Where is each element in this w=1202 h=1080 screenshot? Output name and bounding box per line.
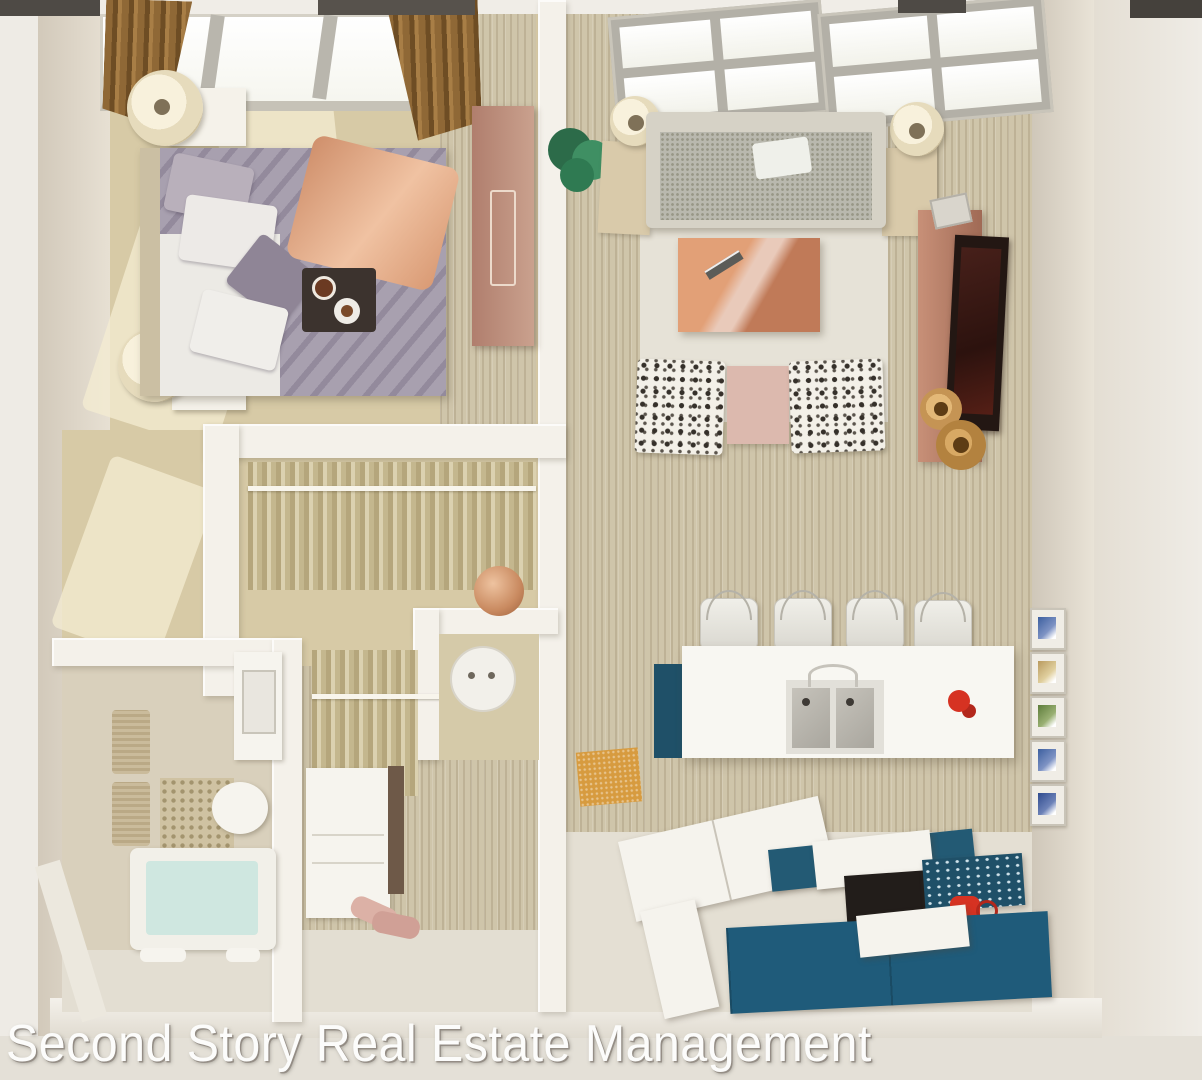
vase-opening <box>934 402 947 415</box>
vanity-basin <box>242 670 276 734</box>
double-bed <box>140 148 446 396</box>
lamp-finial <box>909 123 925 139</box>
drain <box>846 698 854 706</box>
bar-stool <box>846 598 904 652</box>
sofa <box>646 112 886 228</box>
plant <box>560 158 594 192</box>
tv-screen <box>953 247 1002 415</box>
curtain-rod-cap <box>318 0 475 15</box>
bar-stool <box>700 598 758 652</box>
media-box <box>929 192 972 229</box>
outside-right-edge <box>1094 0 1202 1080</box>
wall-art-tile <box>1030 740 1066 782</box>
window-pane <box>829 16 930 67</box>
headboard <box>140 148 160 396</box>
window-pane <box>720 11 814 60</box>
wall-cut-cap <box>1130 0 1202 18</box>
coffee-table <box>678 238 820 332</box>
orange-floor-mat <box>576 747 642 806</box>
floor-lamp <box>890 102 944 156</box>
tile-motif <box>1038 617 1056 639</box>
plate <box>334 298 360 324</box>
window-mullion <box>199 14 225 99</box>
pink-ottoman <box>727 366 789 444</box>
closet-top-wall <box>203 424 566 458</box>
window-pane <box>941 59 1042 110</box>
bathtub-water <box>146 861 258 935</box>
counter-seam <box>712 820 732 900</box>
coffee-cup <box>312 276 336 300</box>
breakfast-tray <box>302 268 376 332</box>
wall-cut-cap <box>0 0 100 16</box>
watermark-text: Second Story Real Estate Management <box>6 1014 872 1074</box>
floor-plan-render: Second Story Real Estate Management <box>0 0 1202 1080</box>
patterned-armchair <box>788 358 885 453</box>
outside-left-edge <box>0 0 38 1080</box>
washer-knob <box>468 672 475 679</box>
wall-art-tile <box>1030 784 1066 826</box>
wooden-vase <box>936 420 986 470</box>
sink-basin <box>836 688 874 748</box>
window-pane <box>936 6 1037 57</box>
copper-decor-ball <box>474 566 524 616</box>
wardrobe <box>472 106 534 346</box>
bath-mat <box>140 948 186 962</box>
lamp-finial <box>154 99 170 115</box>
faucet <box>808 664 858 687</box>
tile-motif <box>1038 793 1056 815</box>
cabinet-dark-side <box>388 766 404 894</box>
closet-rod <box>248 486 536 491</box>
bathtub <box>130 848 276 950</box>
sofa-pillow <box>752 136 812 179</box>
vanity-nook-floor-lower <box>302 930 538 1012</box>
wall-art-tile <box>1030 696 1066 738</box>
window-mullion <box>312 14 338 99</box>
tile-motif <box>1038 705 1056 727</box>
sink-basin <box>792 688 830 748</box>
toilet <box>212 782 268 834</box>
drawer-seam <box>312 862 384 864</box>
towel-on-rack <box>112 782 150 846</box>
bath-mat <box>226 948 260 962</box>
patterned-armchair <box>634 358 725 455</box>
drain <box>802 698 810 706</box>
drawer-seam <box>312 834 384 836</box>
vase-opening <box>953 437 969 453</box>
tile-motif <box>1038 661 1056 683</box>
bedside-lamp <box>127 70 203 146</box>
bathroom-vanity-sink <box>234 652 282 760</box>
tile-motif <box>1038 749 1056 771</box>
wall-art-tile <box>1030 608 1066 650</box>
bar-stool <box>774 598 832 652</box>
washer-knob <box>488 672 495 679</box>
wall-art-tile <box>1030 652 1066 694</box>
wardrobe-handle <box>490 190 516 286</box>
window-pane <box>619 20 713 69</box>
towel-on-rack <box>112 710 150 774</box>
table-decor <box>704 250 743 280</box>
red-mixer <box>948 690 970 712</box>
food <box>341 305 353 317</box>
washer-top-view <box>450 646 516 712</box>
curtain-rod-cap <box>898 0 966 13</box>
drawer-cabinet <box>306 768 390 918</box>
lamp-finial <box>628 115 644 131</box>
window-pane <box>724 62 818 111</box>
